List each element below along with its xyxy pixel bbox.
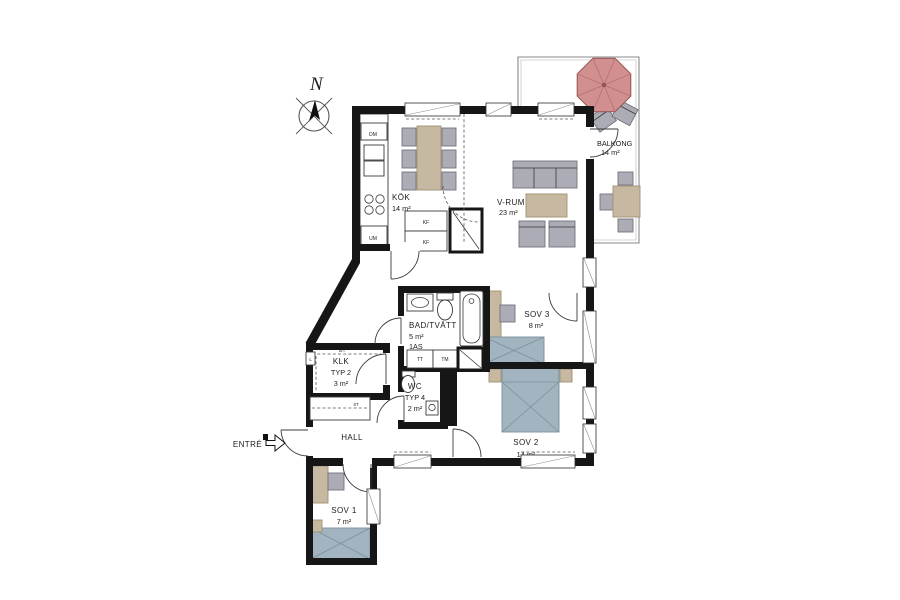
wc-area: 2 m² [408,404,423,413]
diagonal-wall [310,261,357,345]
armchair-1 [519,221,545,247]
vrum-label: V-RUM [497,198,525,207]
sov2-nightstand-left [489,369,501,382]
sov1-area: 7 m² [337,517,352,526]
entrance-label: ENTRÉ [233,440,262,449]
compass-needle [309,100,320,121]
sov1-chair [328,473,344,490]
balcony-chair-bottom [618,219,633,232]
fridge-label: KF [423,220,429,226]
sov3-label: SOV 3 [524,310,550,319]
north-label: N [309,74,324,95]
st-label: ST [353,402,359,407]
bad-area: 5 m² [409,332,424,341]
sov2-bed [502,368,559,432]
bad-note: 1AS [409,342,423,351]
klk-area: 3 m² [334,379,349,388]
kitchen-door [390,242,420,253]
oven [364,145,384,160]
oven-lower [364,161,384,176]
room-hall: ST HALL [310,397,370,442]
sov2-label: SOV 2 [513,438,539,447]
sov2-door [448,426,459,458]
freezer-label: KF [423,240,429,246]
klk-shelf-label: S/T [339,348,346,353]
coffee-table [526,194,567,217]
room-wc: WC TYP 4 2 m² [402,371,439,415]
balcony-door [584,127,596,159]
room-sov3: SOV 3 8 m² [484,291,550,364]
balcony-area: 14 m² [601,148,620,157]
sov3-door [548,284,579,295]
room-bad: TT TM BAD/TVÄTT 5 m² 1AS [407,291,483,370]
washer-label: TM [441,357,448,363]
room-sov2: SOV 2 14 m² [489,368,572,459]
room-sov1: SOV 1 7 m² [309,466,370,559]
compass-rose: N [296,74,332,134]
armchair-2 [549,221,575,247]
um-label: UM [369,236,377,242]
dishwasher-label: DM [369,132,377,138]
toilet [438,300,453,320]
sov3-chair [500,305,515,322]
parasol-icon [577,58,631,112]
balcony-label: BALKONG [597,139,633,148]
wc-type: TYP 4 [405,393,425,402]
washbasin [407,294,433,311]
sofa [513,161,577,188]
bad-label: BAD/TVÄTT [409,321,457,330]
dining-table [417,126,441,190]
balcony-chair-left [600,194,614,210]
sov2-nightstand-right [560,369,572,382]
entrance-opening [304,427,315,456]
wc-label: WC [408,382,422,391]
dining-set [402,126,456,190]
klk-type: TYP 2 [331,368,351,377]
kok-area: 14 m² [392,204,411,213]
hall-cleaning-closet [310,397,370,420]
vrum-area: 23 m² [499,208,518,217]
klk-label: KLK [333,357,350,366]
sov1-door [343,456,372,468]
klk-door [381,353,392,385]
kok-label: KÖK [392,193,410,202]
entrance: ENTRÉ [233,434,285,451]
balcony-chair-top [618,172,633,185]
sov3-area: 8 m² [529,321,544,330]
room-kok: DM UM KF KF NED.TAK KÖK 14 m² [360,114,482,252]
hall-label: HALL [341,433,363,442]
room-klk: L S/T KLK TYP 2 3 m² [306,348,381,391]
sov1-label: SOV 1 [331,506,357,515]
balcony-table [613,186,640,217]
room-vrum: V-RUM 23 m² [497,161,577,247]
wc-basin [426,401,438,415]
toilet-tank [437,293,453,300]
floor-plan: BALKONG 14 m² DM UM KF KF NED.TAK [0,0,900,600]
dryer-label: TT [417,357,423,363]
